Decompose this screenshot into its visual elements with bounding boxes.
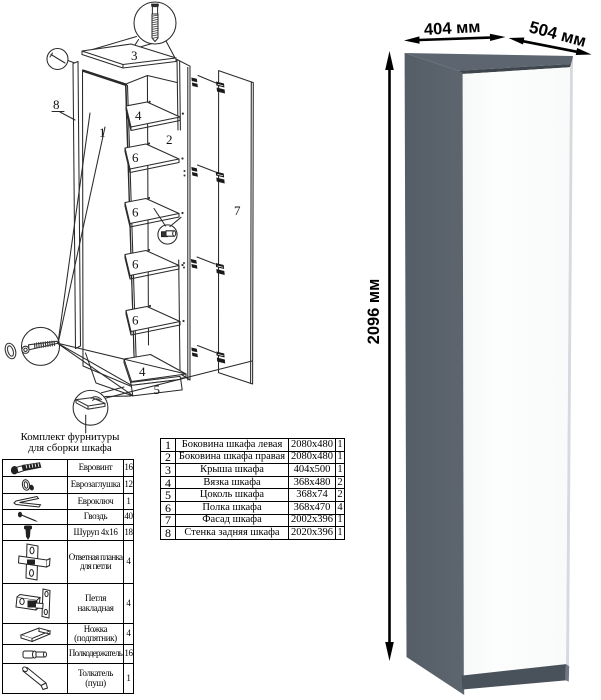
svg-text:2096 мм: 2096 мм [365,279,383,345]
svg-text:4: 4 [139,364,146,379]
svg-text:7: 7 [234,203,241,218]
svg-text:4: 4 [135,108,142,123]
svg-text:504 мм: 504 мм [527,17,588,50]
svg-text:6: 6 [132,313,139,328]
svg-text:6: 6 [132,150,139,165]
svg-text:6: 6 [132,257,139,272]
svg-text:3: 3 [131,48,138,63]
svg-text:8: 8 [53,97,60,112]
svg-text:404 мм: 404 мм [424,18,481,39]
svg-text:6: 6 [132,205,139,220]
svg-text:2: 2 [166,132,173,147]
